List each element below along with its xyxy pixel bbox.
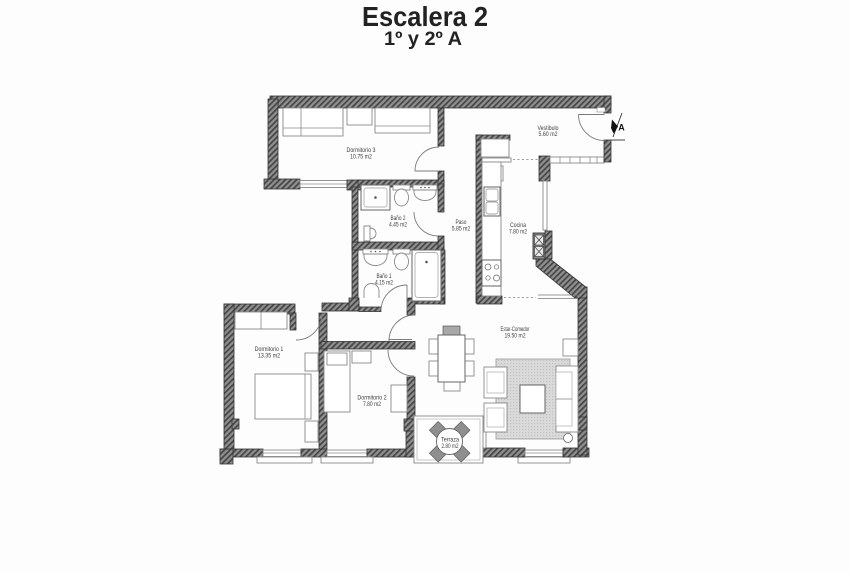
svg-text:7.80 m2: 7.80 m2 [509,229,527,236]
svg-text:2.80 m2: 2.80 m2 [442,443,459,450]
svg-text:19.50 m2: 19.50 m2 [505,332,526,339]
svg-text:5.60 m2: 5.60 m2 [539,131,558,138]
svg-text:7.80 m2: 7.80 m2 [363,401,381,408]
svg-text:Escalera 2: Escalera 2 [362,1,488,32]
svg-text:A: A [618,123,625,133]
svg-text:1º y 2º A: 1º y 2º A [384,29,462,50]
svg-text:13.35 m2: 13.35 m2 [258,353,280,360]
svg-text:5.85 m2: 5.85 m2 [452,226,471,233]
svg-text:4.45 m2: 4.45 m2 [389,222,407,229]
svg-text:4.15 m2: 4.15 m2 [375,280,393,287]
svg-text:10.75 m2: 10.75 m2 [350,154,372,161]
